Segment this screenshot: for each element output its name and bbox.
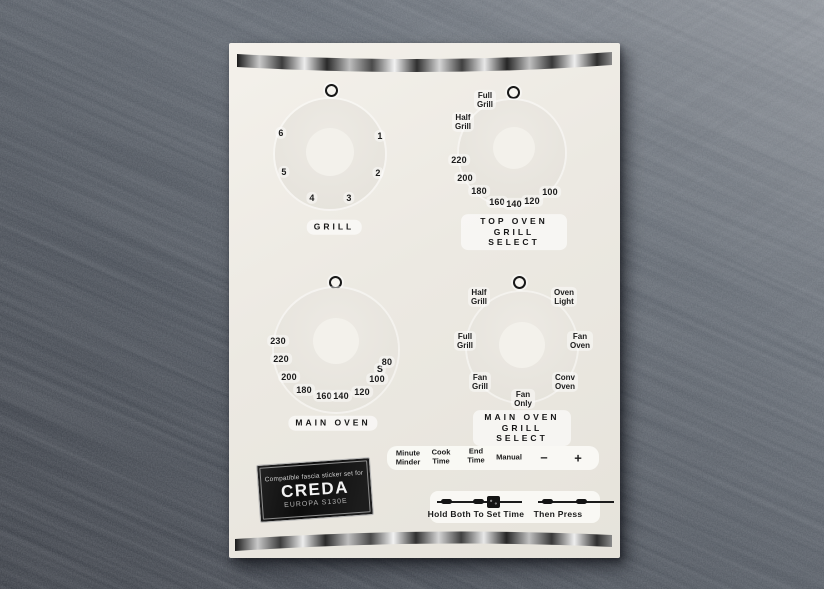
top-oven-dial-hub: [493, 127, 535, 169]
top-oven-mark-220: 220: [448, 154, 470, 166]
then-press-caption: Then Press: [534, 509, 583, 519]
main-select-dial-hub: [499, 322, 545, 368]
main-oven-dial-hub: [313, 318, 359, 364]
top-oven-dial-indicator-icon: [507, 86, 520, 99]
hold-both-caption: Hold Both To Set Time: [428, 509, 525, 519]
top-oven-dial-label: TOP OVEN GRILL SELECT: [461, 214, 567, 250]
top-oven-mark-180: 180: [468, 185, 490, 197]
main-select-mark-fan-oven: Fan Oven: [567, 331, 593, 351]
brand-plate: Compatible fascia sticker set for CREDA …: [256, 457, 374, 523]
main-select-mark-fan-grill: Fan Grill: [469, 372, 491, 392]
sticker-sheet: 1 2 3 4 5 6 GRILL Full Grill Half Grill …: [229, 43, 620, 558]
main-oven-mark-140: 140: [330, 390, 352, 402]
main-oven-mark-200: 200: [278, 371, 300, 383]
grill-dial-indicator-icon: [325, 84, 338, 97]
end-time-label: End Time: [467, 447, 484, 466]
cook-time-label: Cook Time: [432, 448, 451, 467]
top-oven-mark-120: 120: [521, 195, 543, 207]
hold-button-right-icon: [473, 499, 484, 504]
hold-button-left-icon: [441, 499, 452, 504]
grill-dial-label: GRILL: [307, 220, 362, 235]
top-oven-mark-half-grill: Half Grill: [452, 112, 474, 132]
press-button-left-icon: [542, 499, 553, 504]
grill-dial-hub: [306, 128, 354, 176]
main-oven-mark-220: 220: [270, 353, 292, 365]
main-oven-mark-180: 180: [293, 384, 315, 396]
main-oven-mark-80: 80: [379, 356, 395, 368]
top-oven-mark-full-grill: Full Grill: [474, 90, 496, 110]
grill-mark-6: 6: [275, 127, 286, 139]
grill-mark-5: 5: [278, 166, 289, 178]
main-select-dial-label: MAIN OVEN GRILL SELECT: [473, 410, 571, 446]
clock-knob-icon: [487, 496, 500, 508]
minute-minder-label: Minute Minder: [396, 449, 421, 468]
grill-mark-1: 1: [374, 130, 385, 142]
grill-mark-3: 3: [343, 192, 354, 204]
minus-label: –: [540, 451, 547, 464]
bottom-metallic-band: [235, 527, 612, 553]
main-select-mark-fan-only: Fan Only: [511, 389, 535, 409]
top-oven-mark-200: 200: [454, 172, 476, 184]
grill-mark-4: 4: [306, 192, 317, 204]
press-button-right-icon: [576, 499, 587, 504]
plus-label: +: [574, 452, 582, 465]
main-oven-mark-120: 120: [351, 386, 373, 398]
main-oven-mark-230: 230: [267, 335, 289, 347]
top-metallic-band: [237, 48, 612, 74]
main-select-mark-conv-oven: Conv Oven: [552, 372, 578, 392]
main-select-mark-oven-light: Oven Light: [551, 287, 577, 307]
main-select-mark-half-grill: Half Grill: [468, 287, 490, 307]
main-oven-dial-label: MAIN OVEN: [288, 416, 377, 431]
main-select-mark-full-grill: Full Grill: [454, 331, 476, 351]
grill-mark-2: 2: [372, 167, 383, 179]
manual-label: Manual: [496, 452, 522, 461]
main-select-dial-indicator-icon: [513, 276, 526, 289]
grill-dial-disc: [275, 99, 385, 209]
top-oven-mark-100: 100: [539, 186, 561, 198]
